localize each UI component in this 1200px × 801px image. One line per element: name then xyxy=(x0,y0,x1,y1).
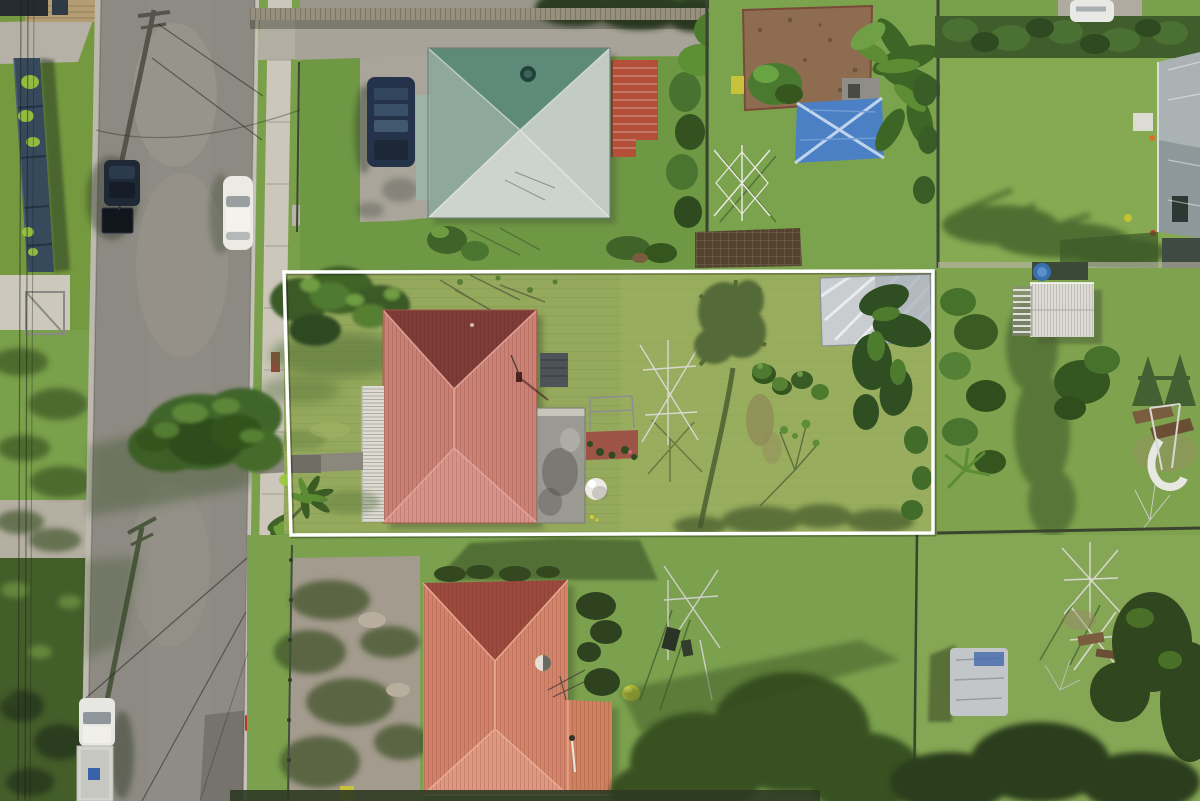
front-path-shaded xyxy=(291,455,321,473)
dark-awning xyxy=(540,353,568,387)
skylight xyxy=(1172,196,1188,222)
north-block xyxy=(250,0,746,270)
white-shed xyxy=(1030,283,1102,344)
parked-car-white xyxy=(209,174,253,254)
paling-fence-slats xyxy=(250,8,710,20)
blue-tarp xyxy=(795,98,884,163)
west-dark-roof2 xyxy=(52,0,68,15)
yellow-box xyxy=(731,76,744,94)
navy-vehicle xyxy=(354,77,415,174)
flat-roof-light-patch xyxy=(560,428,580,452)
bottom-fence-strip xyxy=(230,790,820,801)
driveway-sun-gap1 xyxy=(358,612,386,628)
roof-dot-vent xyxy=(470,323,474,327)
orange-cone xyxy=(1149,135,1155,141)
aerial-photo xyxy=(0,0,1200,801)
antenna-pole-top xyxy=(569,735,575,741)
top-yard-b xyxy=(935,0,1200,270)
deck-flowers xyxy=(628,450,632,454)
roof-corrugation xyxy=(383,310,537,523)
soil-bed-grid xyxy=(695,228,802,268)
aerial-photo-stage xyxy=(0,0,1200,801)
west-dark-roof xyxy=(0,0,48,16)
pool-inner xyxy=(1037,267,1047,277)
paver-patch xyxy=(1064,610,1096,630)
parked-ute-white xyxy=(77,698,134,801)
covered-trailer xyxy=(928,645,1008,722)
hedge-row xyxy=(935,16,1200,58)
small-shed-opening xyxy=(848,84,860,98)
box-trailer xyxy=(102,208,133,233)
roof-vent-inner xyxy=(524,70,532,78)
featured-property xyxy=(260,266,935,536)
greenhouse-roof xyxy=(416,48,616,224)
shed-pergola-strips xyxy=(1012,286,1032,336)
right-neighbor xyxy=(937,262,1200,536)
west-driveway xyxy=(0,20,93,64)
top-yard-a xyxy=(695,0,948,270)
flat-roof-stain2 xyxy=(538,488,562,516)
yard-b-white-car xyxy=(1070,0,1114,22)
dirt-patch2 xyxy=(762,432,782,464)
paling-fence-shadow xyxy=(250,20,710,29)
white-box xyxy=(1133,113,1153,131)
yellow-item xyxy=(1124,214,1132,222)
south-block xyxy=(230,535,1200,801)
flat-roof-parapet xyxy=(537,408,585,416)
driveway-sun-gap2 xyxy=(386,683,410,697)
ute-tray-blue-item xyxy=(88,768,100,780)
trailer-blue-strap xyxy=(974,652,1004,666)
parked-suv-dark xyxy=(86,156,140,240)
